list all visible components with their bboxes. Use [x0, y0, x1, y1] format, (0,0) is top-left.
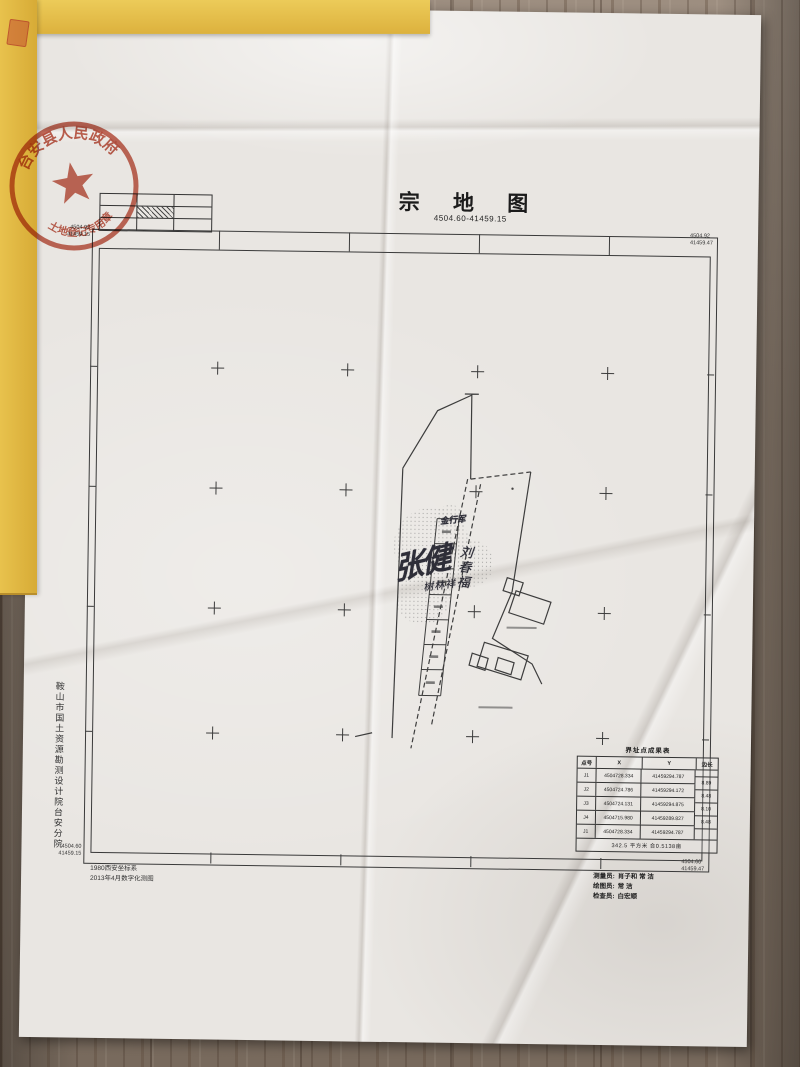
- building-label-smudges: [478, 627, 536, 708]
- staff-line: 绘图员:常 洁: [593, 882, 657, 893]
- table-header: 边长: [697, 758, 718, 769]
- handwritten-box-label: 金行军: [440, 513, 466, 527]
- grid-cross: [601, 366, 614, 379]
- grid-cross: [341, 363, 354, 376]
- yellow-folder-top-edge: [0, 0, 430, 34]
- corner-coordinate-tr: 4504.92 41459.47: [690, 233, 713, 247]
- index-grid-cell: [174, 207, 211, 220]
- table-cell: 8.89: [695, 777, 717, 790]
- table-cell: 8.48: [695, 790, 717, 803]
- table-cell: J2: [577, 783, 596, 796]
- table-cell: 8.10: [695, 803, 717, 816]
- staff-signatures: 测量员:肖子和 常 洁 绘图员:常 洁 检查员:白宏顺: [593, 872, 657, 902]
- table-cell: J1: [577, 825, 596, 838]
- frame-tick: [210, 853, 211, 864]
- star-icon: [49, 159, 97, 205]
- table-cell: 8.48: [695, 816, 717, 829]
- table-row: J3 4504724.131 41459294.875: [577, 796, 695, 812]
- table-cell: J4: [577, 811, 596, 824]
- frame-tick: [702, 739, 709, 740]
- staff-line: 测量员:肖子和 常 洁: [593, 872, 657, 883]
- index-grid-cell: [174, 195, 211, 208]
- government-seal: 台安县人民政府 土地登记专用章: [0, 105, 155, 267]
- frame-tick: [90, 366, 97, 367]
- table-row: J1 4504728.334 41459294.787: [577, 769, 695, 784]
- map-notes: 1980西安坐标系 2013年4月数字化测图: [90, 864, 154, 885]
- surveying-agency-name: 鞍山市国土资源勘测设计院台安分院: [51, 681, 66, 849]
- note-line: 2013年4月数字化测图: [90, 874, 154, 885]
- grid-cross: [335, 728, 348, 741]
- grid-cross: [207, 601, 220, 614]
- table-cell: 4504728.334: [596, 825, 642, 839]
- grid-cross: [211, 361, 224, 374]
- table-cell: 4504715.980: [596, 811, 642, 825]
- frame-tick: [85, 731, 92, 732]
- frame-tick: [600, 858, 601, 869]
- frame-tick: [470, 856, 471, 867]
- table-cell: 41459294.875: [642, 798, 696, 812]
- grid-cross: [206, 726, 219, 739]
- yellow-folder-left-edge: [0, 0, 37, 595]
- table-row: J1 4504728.334 41459294.787: [577, 824, 695, 840]
- table-cell: J3: [577, 797, 596, 810]
- table-header: 点号: [578, 757, 597, 768]
- edge-length-column: 8.89 8.48 8.10 8.48: [695, 770, 718, 839]
- frame-tick: [89, 486, 96, 487]
- grid-cross: [337, 603, 350, 616]
- table-title: 界址点成果表: [577, 744, 719, 756]
- frame-tick: [705, 494, 712, 495]
- table-cell: 41459289.827: [641, 812, 695, 826]
- boundary-point-table: 界址点成果表 点号 X Y 边长 J1 4504728.334 41459294…: [575, 744, 718, 854]
- frame-tick: [87, 606, 94, 607]
- table-cell: J1: [577, 769, 596, 782]
- table-row: J4 4504715.980 41459289.827: [577, 810, 695, 826]
- frame-tick: [704, 614, 711, 615]
- frame-tick: [707, 374, 714, 375]
- parcel-map-drawing: [355, 380, 610, 753]
- grid-cross: [339, 483, 352, 496]
- grid-cross: [209, 481, 222, 494]
- table-cell: 41459294.787: [641, 826, 695, 840]
- table-cell: 4504728.334: [596, 769, 642, 783]
- grid-cross: [471, 365, 484, 378]
- corner-coordinate-br: 4504.60 41459.47: [681, 859, 704, 873]
- staff-line: 检查员:白宏顺: [593, 891, 657, 902]
- frame-tick: [340, 854, 341, 865]
- table-header: Y: [643, 758, 697, 770]
- table-cell: 4504724.131: [596, 797, 642, 811]
- table-row: J2 4504724.786 41459294.172: [577, 782, 695, 798]
- table-header: X: [597, 757, 643, 769]
- red-stamp-fragment: [6, 19, 29, 48]
- area-summary: 342.5 平方米 合0.5138亩: [576, 838, 716, 853]
- table-cell: 41459294.787: [642, 770, 696, 784]
- survey-point-dot: [511, 487, 513, 489]
- table-cell: 4504724.786: [596, 783, 642, 797]
- table-cell: 41459294.172: [642, 784, 696, 798]
